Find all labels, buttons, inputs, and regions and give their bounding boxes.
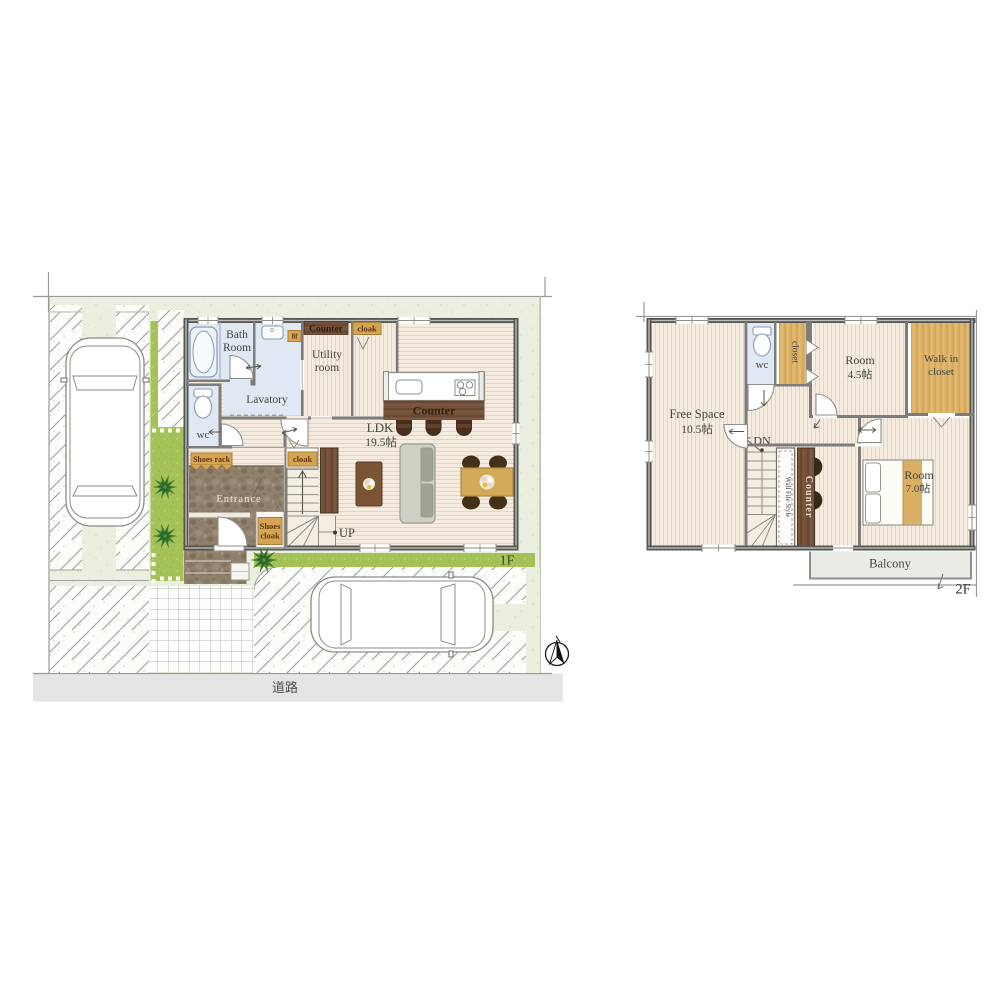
- svg-text:UP: UP: [339, 526, 355, 540]
- svg-text:Free Space: Free Space: [669, 407, 725, 421]
- svg-text:1F: 1F: [500, 554, 515, 569]
- svg-text:closet: closet: [790, 341, 800, 364]
- svg-text:LDK: LDK: [367, 420, 394, 435]
- svg-text:wc: wc: [197, 429, 210, 441]
- svg-text:Shoes: Shoes: [260, 521, 281, 531]
- svg-text:Room: Room: [845, 353, 875, 367]
- svg-text:10.5帖: 10.5帖: [681, 422, 713, 436]
- svg-text:Walk in: Walk in: [924, 353, 959, 365]
- svg-text:Wall File Style: Wall File Style: [784, 477, 791, 518]
- svg-text:closet: closet: [928, 366, 954, 378]
- svg-text:Room: Room: [223, 342, 251, 354]
- svg-text:Counter: Counter: [309, 324, 344, 334]
- svg-text:Shoes rack: Shoes rack: [193, 455, 231, 464]
- svg-text:Counter: Counter: [803, 476, 814, 519]
- svg-text:7.0帖: 7.0帖: [906, 482, 931, 495]
- svg-text:Utility: Utility: [312, 349, 342, 361]
- svg-text:cloak: cloak: [260, 531, 280, 541]
- svg-text:cloak: cloak: [357, 323, 377, 333]
- svg-text:Counter: Counter: [413, 404, 456, 418]
- svg-text:4.5帖: 4.5帖: [848, 368, 873, 381]
- svg-text:8f: 8f: [292, 332, 299, 340]
- svg-text:道路: 道路: [272, 680, 298, 695]
- svg-text:19.5帖: 19.5帖: [365, 435, 397, 449]
- svg-text:Entrance: Entrance: [216, 494, 261, 505]
- svg-text:Lavatory: Lavatory: [246, 394, 288, 406]
- svg-text:wc: wc: [756, 359, 769, 371]
- svg-text:cloak: cloak: [293, 454, 313, 464]
- svg-text:Bath: Bath: [226, 329, 248, 341]
- svg-text:Room: Room: [904, 468, 934, 482]
- svg-text:Balcony: Balcony: [869, 557, 911, 571]
- svg-text:room: room: [315, 362, 339, 374]
- svg-text:2F: 2F: [955, 582, 970, 598]
